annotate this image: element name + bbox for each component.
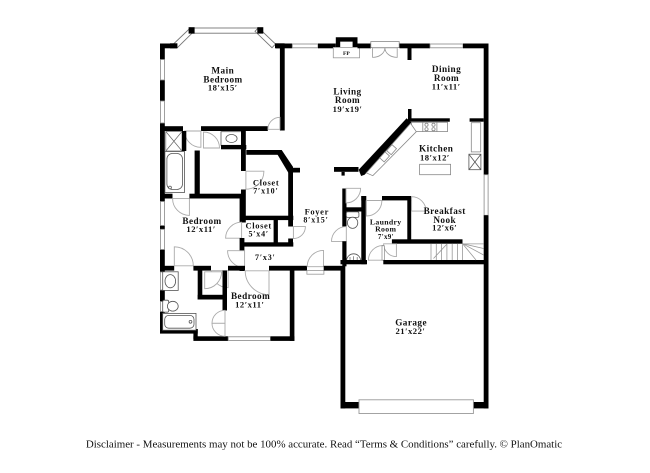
svg-text:5′x4′: 5′x4′ — [248, 230, 269, 239]
svg-text:7′x9′: 7′x9′ — [378, 233, 394, 241]
svg-text:11′x11′: 11′x11′ — [432, 81, 461, 91]
svg-text:12′x6′: 12′x6′ — [432, 223, 457, 233]
svg-text:21′x22′: 21′x22′ — [395, 326, 425, 336]
svg-text:7′x3′: 7′x3′ — [255, 253, 276, 262]
svg-text:Disclaimer - Measurements may: Disclaimer - Measurements may not be 100… — [86, 439, 562, 451]
svg-text:18′x15′: 18′x15′ — [208, 83, 238, 93]
svg-text:8′x15′: 8′x15′ — [303, 215, 328, 224]
svg-text:12′x11′: 12′x11′ — [235, 299, 264, 309]
svg-text:19′x19′: 19′x19′ — [333, 104, 363, 114]
svg-text:18′x12′: 18′x12′ — [420, 152, 450, 162]
svg-text:7′x10′: 7′x10′ — [253, 187, 278, 196]
svg-text:12′x11′: 12′x11′ — [186, 224, 215, 234]
svg-text:FP: FP — [343, 51, 350, 57]
